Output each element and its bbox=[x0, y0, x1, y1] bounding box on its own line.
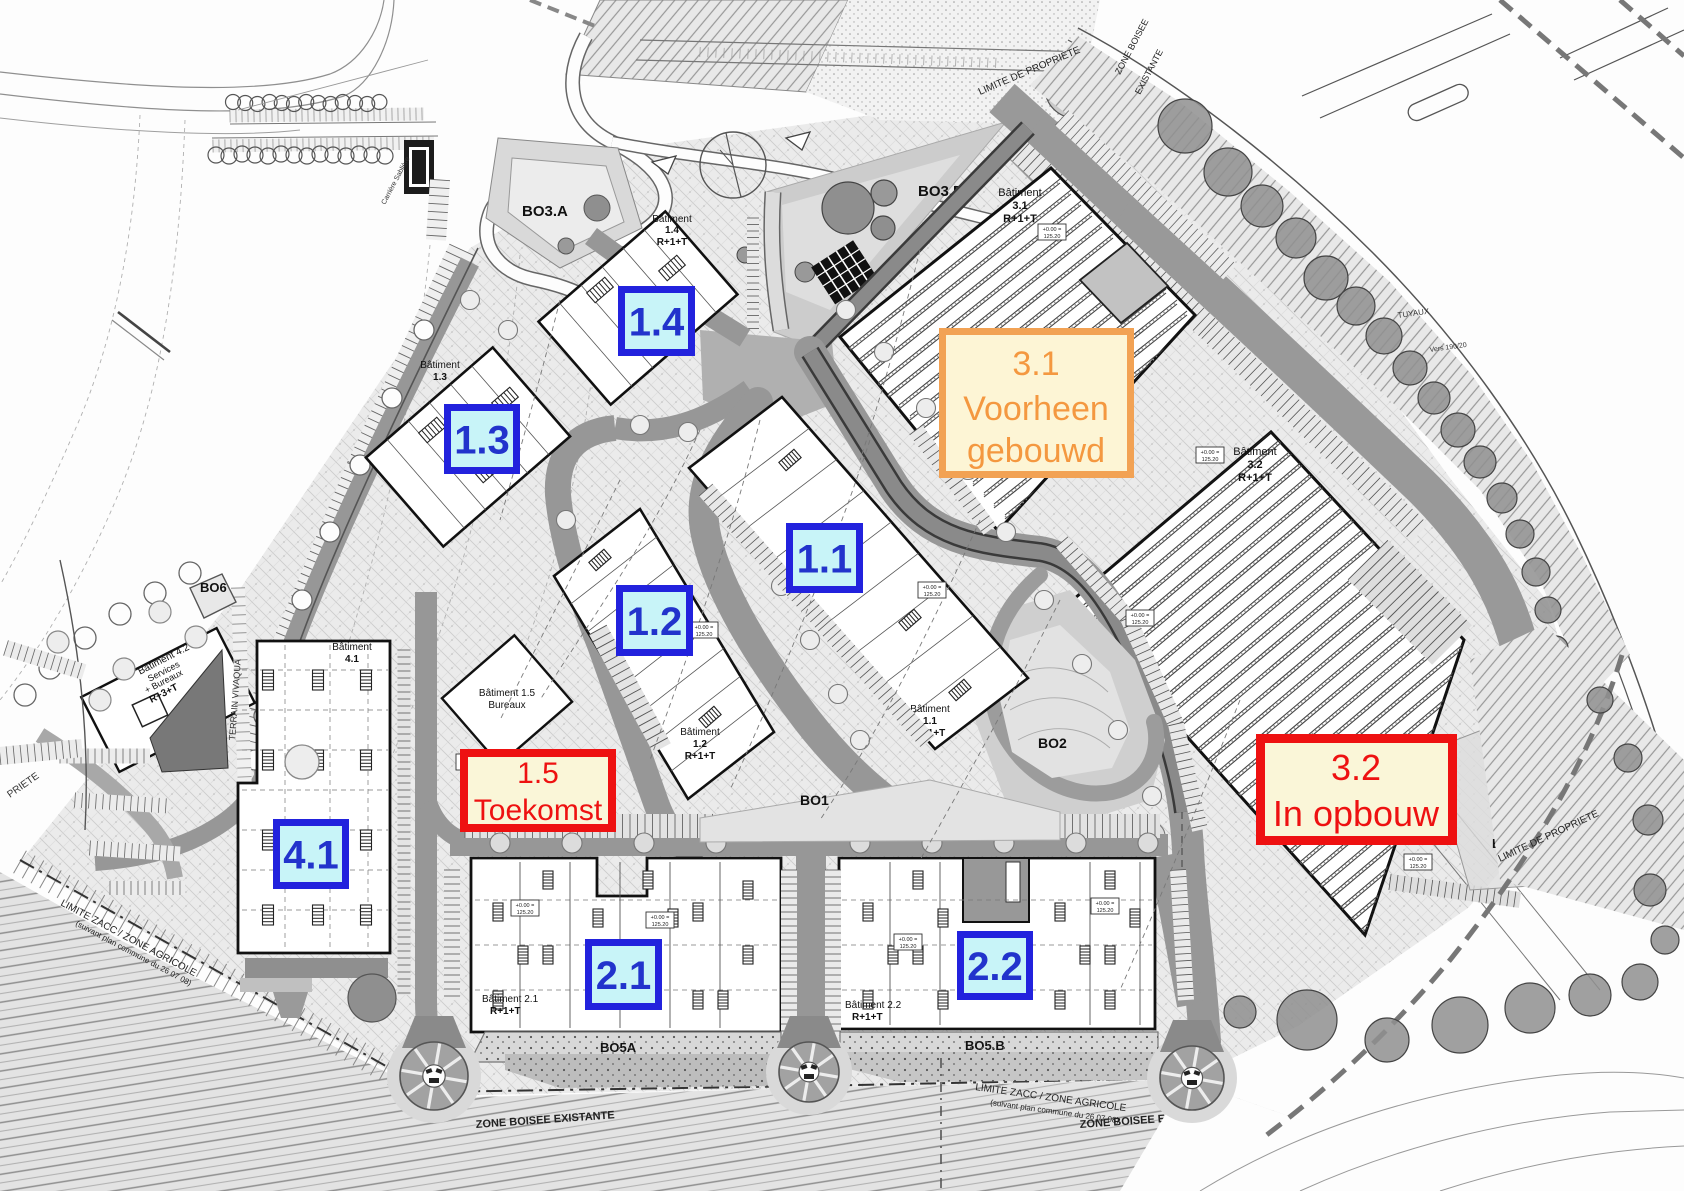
svg-text:Bâtiment 2.2: Bâtiment 2.2 bbox=[845, 1000, 902, 1011]
svg-text:125.20: 125.20 bbox=[1097, 908, 1114, 914]
svg-text:BO1: BO1 bbox=[800, 792, 829, 808]
svg-text:R+1+T: R+1+T bbox=[685, 751, 716, 762]
svg-text:3.1: 3.1 bbox=[1012, 345, 1059, 383]
svg-text:In opbouw: In opbouw bbox=[1273, 793, 1440, 834]
svg-text:+0.00 =: +0.00 = bbox=[899, 937, 918, 943]
svg-text:125.20: 125.20 bbox=[1132, 620, 1149, 626]
svg-text:125.20: 125.20 bbox=[900, 944, 917, 950]
svg-text:gebouwd: gebouwd bbox=[967, 432, 1105, 470]
svg-text:125.20: 125.20 bbox=[1044, 234, 1061, 240]
svg-text:125.20: 125.20 bbox=[696, 632, 713, 638]
svg-text:125.20: 125.20 bbox=[517, 910, 534, 916]
svg-text:4.1: 4.1 bbox=[283, 833, 339, 877]
svg-text:+0.00 =: +0.00 = bbox=[1096, 901, 1115, 907]
svg-text:Voorheen: Voorheen bbox=[963, 390, 1109, 428]
svg-text:Bâtiment: Bâtiment bbox=[1233, 446, 1276, 458]
svg-text:1.4: 1.4 bbox=[629, 300, 685, 344]
svg-text:R+1+T: R+1+T bbox=[657, 237, 688, 248]
svg-text:1.4: 1.4 bbox=[665, 225, 679, 236]
svg-text:BO2: BO2 bbox=[1038, 735, 1067, 751]
svg-text:Toekomst: Toekomst bbox=[474, 794, 603, 827]
svg-text:Bâtiment 1.5: Bâtiment 1.5 bbox=[479, 688, 536, 699]
svg-text:3.2: 3.2 bbox=[1331, 747, 1381, 788]
svg-text:+0.00 =: +0.00 = bbox=[695, 625, 714, 631]
svg-text:+0.00 =: +0.00 = bbox=[516, 903, 535, 909]
svg-text:Bâtiment 2.1: Bâtiment 2.1 bbox=[482, 994, 539, 1005]
svg-text:1.5: 1.5 bbox=[517, 757, 559, 790]
svg-text:125.20: 125.20 bbox=[1202, 457, 1219, 463]
svg-text:R+1+T: R+1+T bbox=[490, 1006, 521, 1017]
svg-text:Bâtiment: Bâtiment bbox=[332, 642, 372, 653]
svg-text:Bâtiment: Bâtiment bbox=[420, 360, 460, 371]
svg-text:+0.00 =: +0.00 = bbox=[1201, 450, 1220, 456]
svg-text:R+1+T: R+1+T bbox=[1238, 472, 1272, 484]
svg-text:2.1: 2.1 bbox=[596, 954, 652, 998]
svg-text:BO3.A: BO3.A bbox=[522, 203, 568, 220]
svg-text:2.2: 2.2 bbox=[967, 945, 1023, 989]
svg-text:Bâtiment: Bâtiment bbox=[910, 704, 950, 715]
svg-text:125.20: 125.20 bbox=[1410, 864, 1427, 870]
svg-text:1.1: 1.1 bbox=[797, 537, 853, 581]
svg-text:1.2: 1.2 bbox=[627, 600, 683, 644]
svg-text:R+1+T: R+1+T bbox=[1003, 213, 1037, 225]
svg-text:Bâtiment: Bâtiment bbox=[998, 187, 1041, 199]
svg-text:1.3: 1.3 bbox=[433, 372, 447, 383]
svg-text:Bâtiment: Bâtiment bbox=[652, 214, 692, 225]
svg-text:+0.00 =: +0.00 = bbox=[651, 915, 670, 921]
svg-text:4.1: 4.1 bbox=[345, 654, 359, 665]
svg-text:+0.00 =: +0.00 = bbox=[923, 585, 942, 591]
svg-text:R+1+T: R+1+T bbox=[852, 1012, 883, 1023]
svg-text:3.1: 3.1 bbox=[1012, 200, 1027, 212]
svg-text:125.20: 125.20 bbox=[924, 592, 941, 598]
svg-text:Bâtiment: Bâtiment bbox=[680, 727, 720, 738]
svg-text:1.3: 1.3 bbox=[454, 418, 510, 462]
svg-text:3.2: 3.2 bbox=[1247, 459, 1262, 471]
svg-text:+0.00 =: +0.00 = bbox=[1409, 857, 1428, 863]
svg-text:+0.00 =: +0.00 = bbox=[1131, 613, 1150, 619]
svg-text:BO6: BO6 bbox=[200, 580, 227, 595]
svg-text:125.20: 125.20 bbox=[652, 922, 669, 928]
svg-text:1.2: 1.2 bbox=[693, 739, 707, 750]
svg-text:+0.00 =: +0.00 = bbox=[1043, 227, 1062, 233]
